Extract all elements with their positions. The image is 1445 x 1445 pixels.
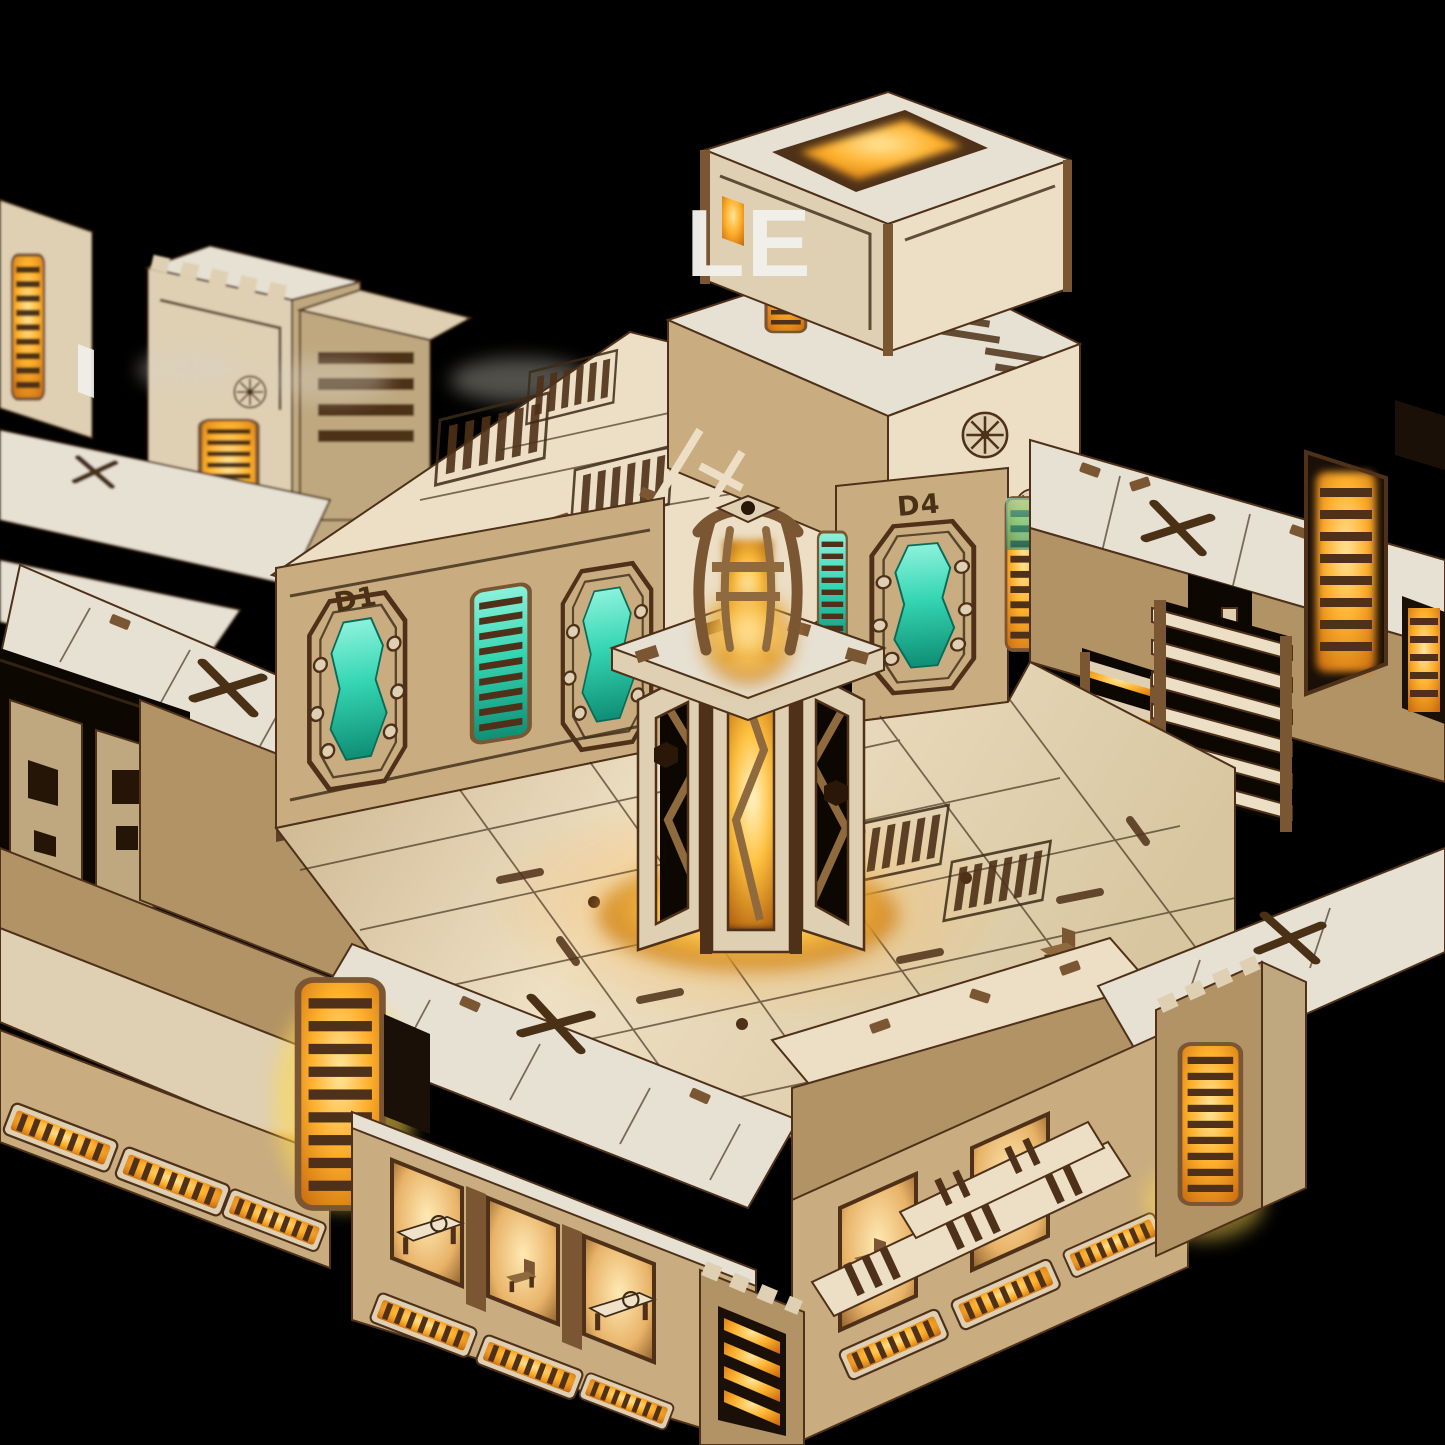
door-label-d4: D4 bbox=[896, 488, 942, 523]
fan-grille bbox=[234, 376, 265, 407]
orange-vent-panel bbox=[1306, 452, 1386, 694]
orange-vent-small bbox=[1402, 596, 1445, 724]
vent-ladder bbox=[1180, 1044, 1241, 1204]
vent-ladder-teal bbox=[472, 583, 530, 744]
fan-grille bbox=[963, 413, 1007, 457]
terrain-render: D1 D4 bbox=[0, 0, 1445, 1445]
watermark-fragment bbox=[78, 344, 94, 398]
terrain-render-stage: D1 D4 bbox=[0, 0, 1445, 1445]
vent-ladder bbox=[12, 255, 44, 399]
watermark-text: LE bbox=[686, 190, 813, 297]
